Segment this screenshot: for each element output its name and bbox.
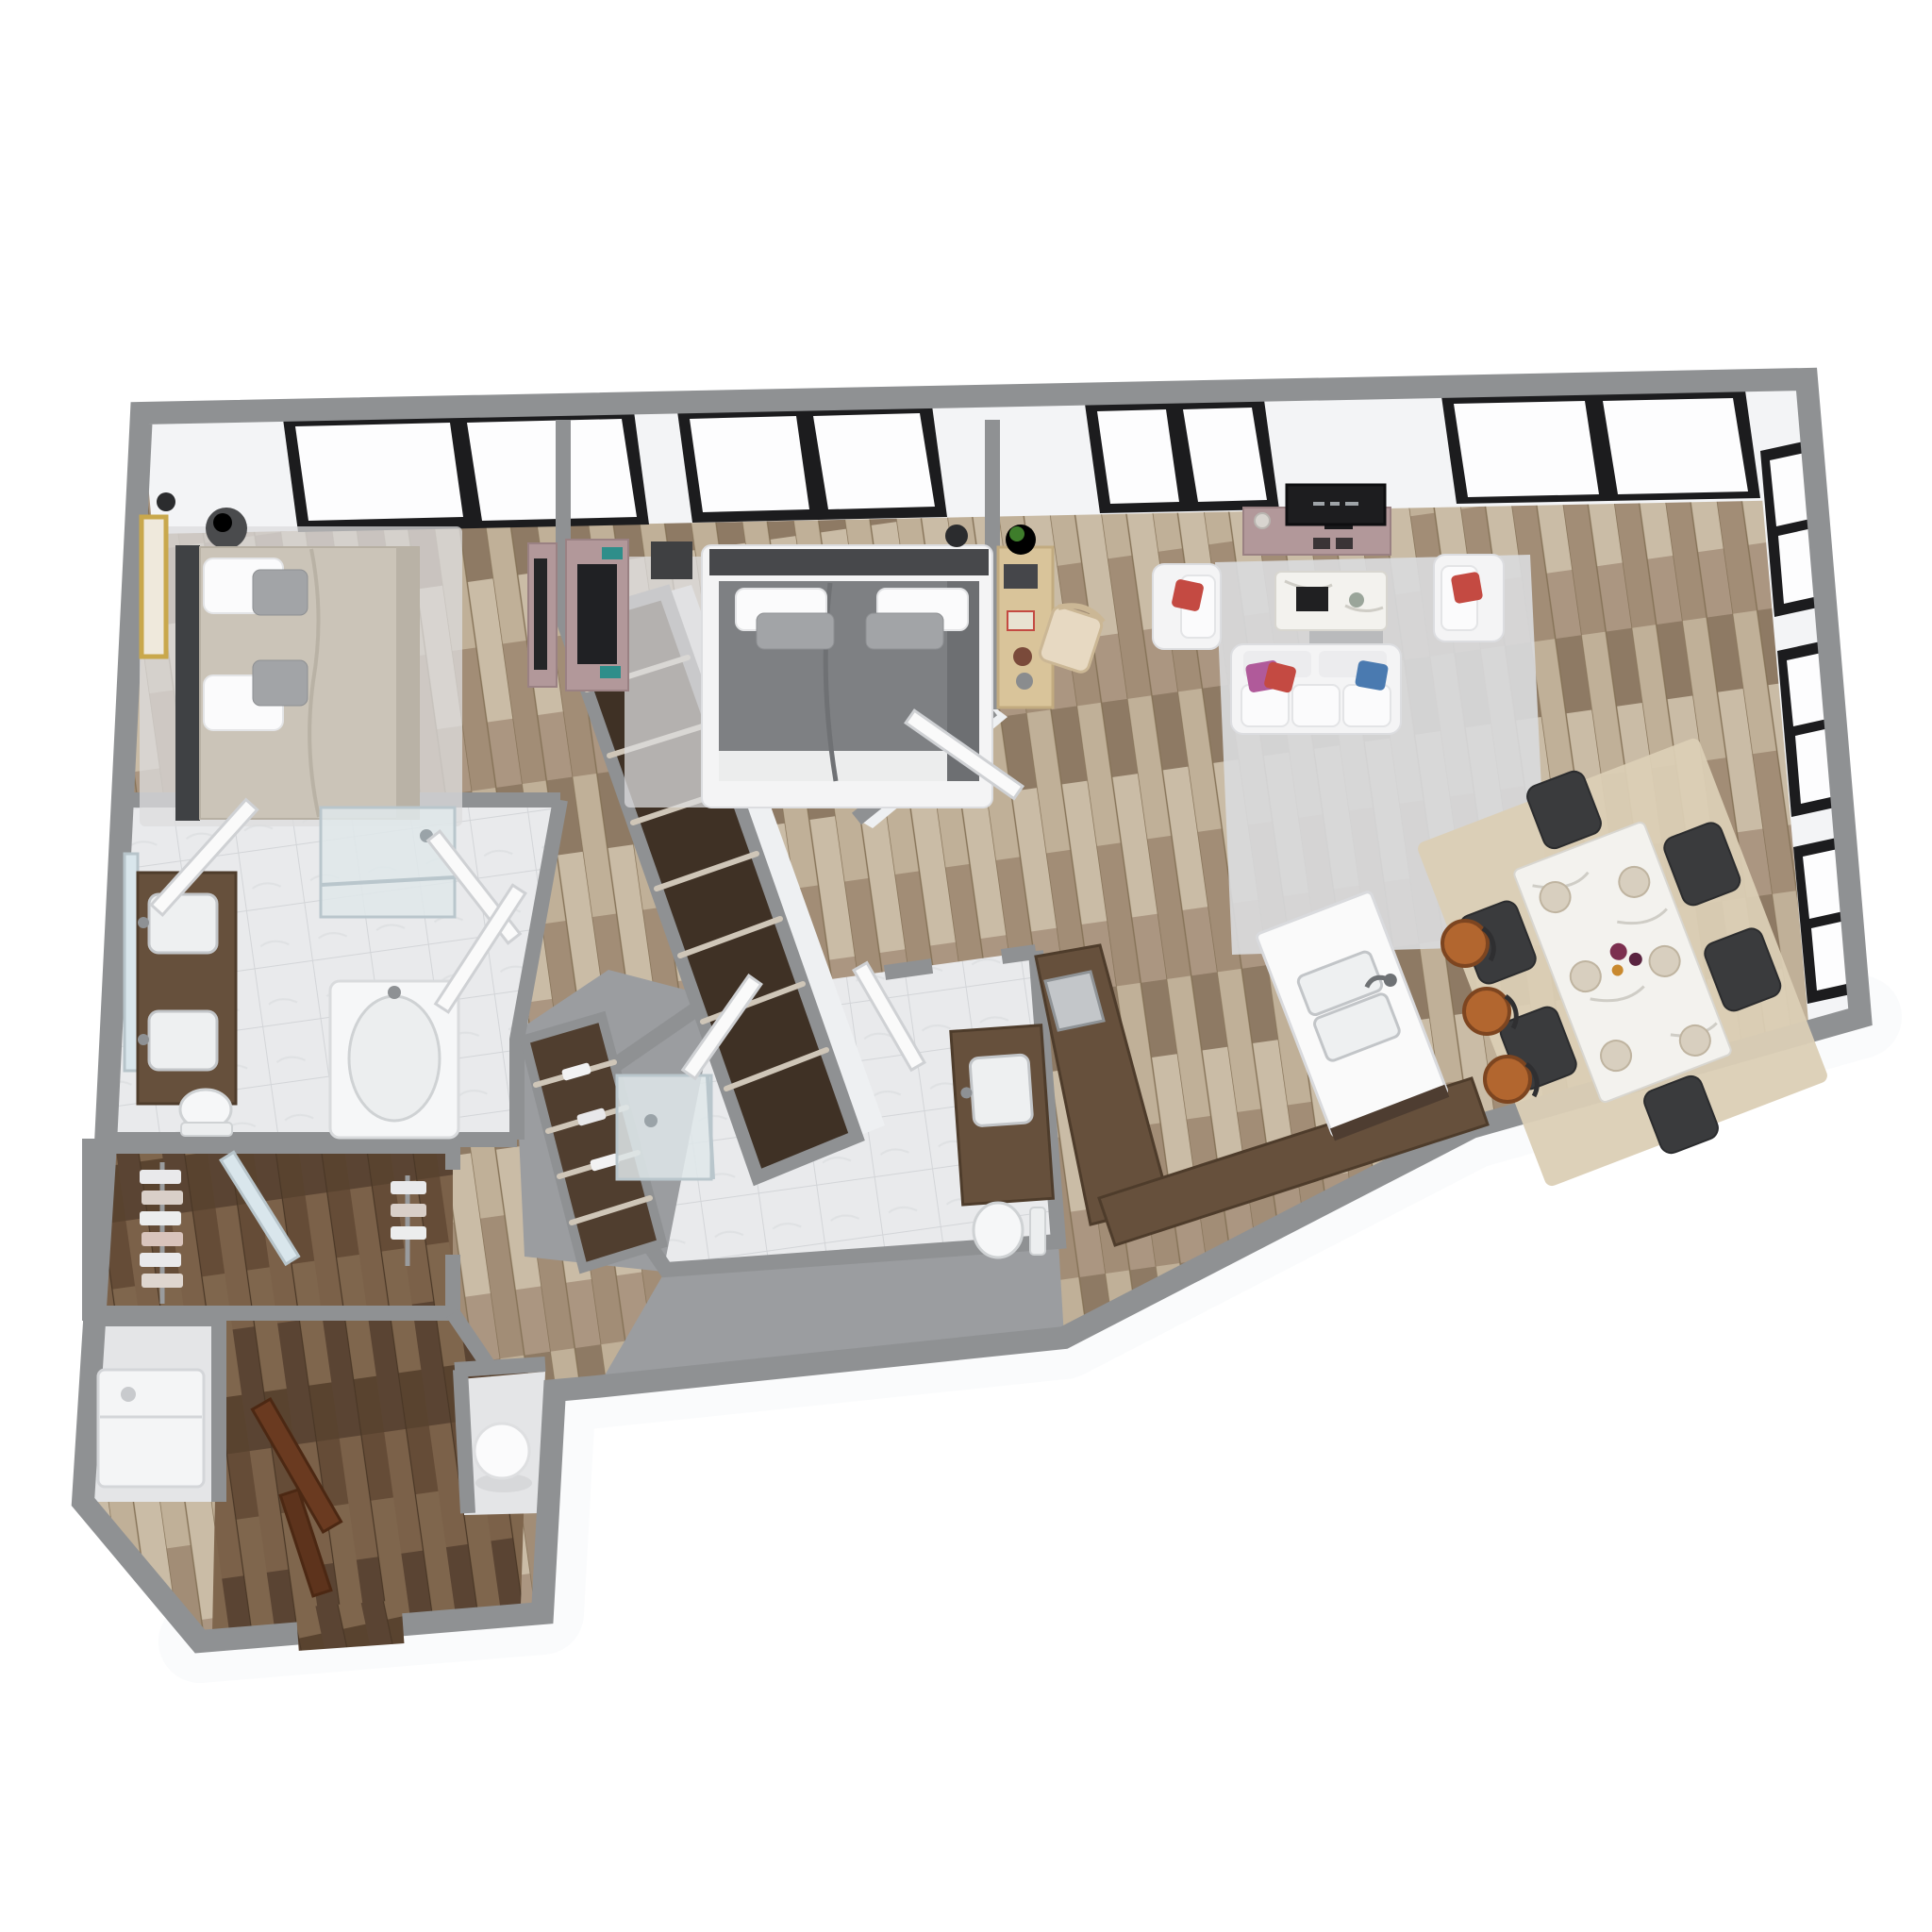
toilet-tank (181, 1123, 232, 1136)
desk-camera (1013, 647, 1032, 666)
table-flowers (1349, 592, 1364, 608)
floor-plan-page (0, 0, 1932, 1932)
bar-stool (1485, 1057, 1530, 1102)
sink-basin (149, 1011, 217, 1070)
toilet (180, 1090, 232, 1136)
walk-in-shower (321, 808, 455, 917)
bed (175, 545, 419, 821)
shower-enclosure (617, 1075, 711, 1179)
room-entry-nook (475, 1424, 532, 1492)
vanity-mirror (125, 854, 138, 1071)
console-media (1313, 538, 1330, 549)
tv (534, 558, 547, 670)
desk-books (1004, 564, 1038, 589)
tub-basin (349, 996, 440, 1121)
desk (998, 525, 1053, 708)
arc-floor-lamp (157, 492, 175, 511)
accent-pillow (1355, 659, 1389, 691)
window-living-right (1441, 391, 1760, 504)
teal-books (602, 547, 623, 559)
shower-head (644, 1114, 658, 1127)
vanity (951, 1025, 1054, 1205)
headboard (709, 549, 989, 575)
toilet-tank (1030, 1207, 1045, 1255)
desk-magazine (1008, 611, 1034, 630)
entry-threshold (296, 1600, 405, 1651)
seat-cushion (1343, 685, 1391, 726)
hanging-clothes (391, 1204, 426, 1217)
tv (577, 564, 617, 664)
hanging-clothes (140, 1170, 181, 1184)
faucet (138, 917, 149, 928)
nightstand-plant (213, 513, 232, 532)
seat-cushion (1292, 685, 1340, 726)
faucet (138, 1034, 149, 1045)
pillow-gray (253, 570, 308, 615)
blanket-drape (396, 547, 419, 819)
hanging-clothes (142, 1274, 183, 1288)
bed (702, 545, 992, 808)
pillow-gray (757, 613, 834, 649)
table-top (1275, 572, 1387, 630)
accent-pillow (1171, 578, 1205, 612)
hanging-clothes (391, 1226, 426, 1240)
hanging-clothes (142, 1191, 183, 1205)
tub-faucet (388, 986, 401, 999)
decor-vase (1255, 513, 1270, 528)
teal-books (600, 666, 621, 678)
desk-plant-leaves (1009, 526, 1024, 541)
window-bedroom-1 (283, 411, 649, 532)
arc-floor-lamp (945, 525, 968, 547)
headboard (175, 545, 200, 821)
room-laundry (98, 1370, 204, 1487)
hanging-clothes (391, 1181, 426, 1194)
walk-in-shower (617, 1075, 713, 1179)
hanging-clothes (140, 1253, 181, 1267)
sink-basin (970, 1055, 1033, 1126)
window-living-left (1085, 400, 1279, 513)
sofa (1231, 644, 1401, 734)
desk-clock (1016, 673, 1033, 690)
window-bedroom-2 (677, 406, 947, 523)
floor-plan-canvas (0, 0, 1932, 1932)
console-media (1336, 538, 1353, 549)
wall-art (142, 517, 166, 657)
bar-stool (1464, 989, 1509, 1034)
bar-stool (1442, 921, 1488, 966)
shower-enclosure (321, 808, 455, 917)
pillow-gray (253, 660, 308, 706)
pillow-gray (866, 613, 943, 649)
globe-floor-lamp (475, 1424, 529, 1478)
accent-pillow (1451, 572, 1484, 605)
washer-dial (121, 1387, 136, 1402)
hanging-clothes (142, 1232, 183, 1246)
hanging-clothes (140, 1211, 181, 1225)
armchair-right (1434, 555, 1504, 641)
black-tray (1296, 587, 1328, 611)
washer-dryer (98, 1370, 204, 1487)
nightstand (651, 541, 692, 579)
armchair-left (1153, 564, 1221, 649)
toilet (974, 1203, 1045, 1257)
